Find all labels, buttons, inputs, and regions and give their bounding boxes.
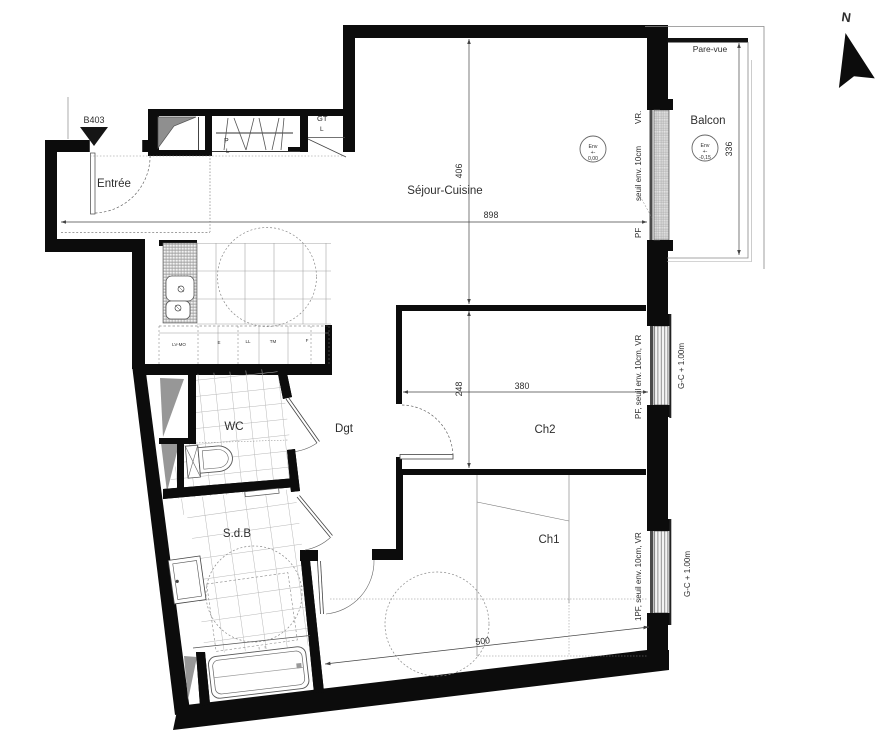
svg-text:Balcon: Balcon <box>690 115 725 127</box>
svg-text:380: 380 <box>515 381 530 391</box>
svg-text:Ch1: Ch1 <box>538 534 559 546</box>
svg-text:LV-MO: LV-MO <box>172 342 186 347</box>
svg-text:248: 248 <box>454 382 464 397</box>
svg-text:F: F <box>306 338 309 343</box>
svg-text:GT: GT <box>317 114 328 123</box>
svg-text:Pare-vue: Pare-vue <box>693 44 728 54</box>
svg-text:Séjour-Cuisine: Séjour-Cuisine <box>407 185 482 197</box>
svg-text:PF, seuil env. 10cm, VR: PF, seuil env. 10cm, VR <box>634 334 643 419</box>
svg-text:-0,15: -0,15 <box>699 155 711 161</box>
svg-text:406: 406 <box>454 164 464 179</box>
svg-text:336: 336 <box>724 142 734 157</box>
svg-text:WC: WC <box>224 421 243 433</box>
svg-text:TM: TM <box>270 339 277 344</box>
svg-text:P: P <box>224 138 229 145</box>
svg-text:seuil env. 10cm: seuil env. 10cm <box>634 146 643 201</box>
svg-text:E: E <box>217 340 220 345</box>
svg-text:LL: LL <box>245 339 251 344</box>
svg-text:0,00: 0,00 <box>588 156 598 162</box>
svg-text:898: 898 <box>484 210 499 220</box>
svg-text:1PF, seuil env. 10cm, VR: 1PF, seuil env. 10cm, VR <box>634 532 643 621</box>
svg-text:S.d.B: S.d.B <box>223 528 251 540</box>
svg-text:L: L <box>320 126 324 133</box>
svg-text:B403: B403 <box>83 115 104 125</box>
svg-text:Entrée: Entrée <box>97 178 131 190</box>
svg-text:Dgt: Dgt <box>335 423 354 435</box>
svg-text:G-C + 1.00m: G-C + 1.00m <box>677 343 686 389</box>
svg-text:VR.: VR. <box>634 111 643 124</box>
svg-text:Ch2: Ch2 <box>534 424 555 436</box>
svg-text:G-C + 1.00m: G-C + 1.00m <box>683 551 692 597</box>
svg-text:PF: PF <box>634 228 643 238</box>
svg-text:500: 500 <box>475 635 491 647</box>
